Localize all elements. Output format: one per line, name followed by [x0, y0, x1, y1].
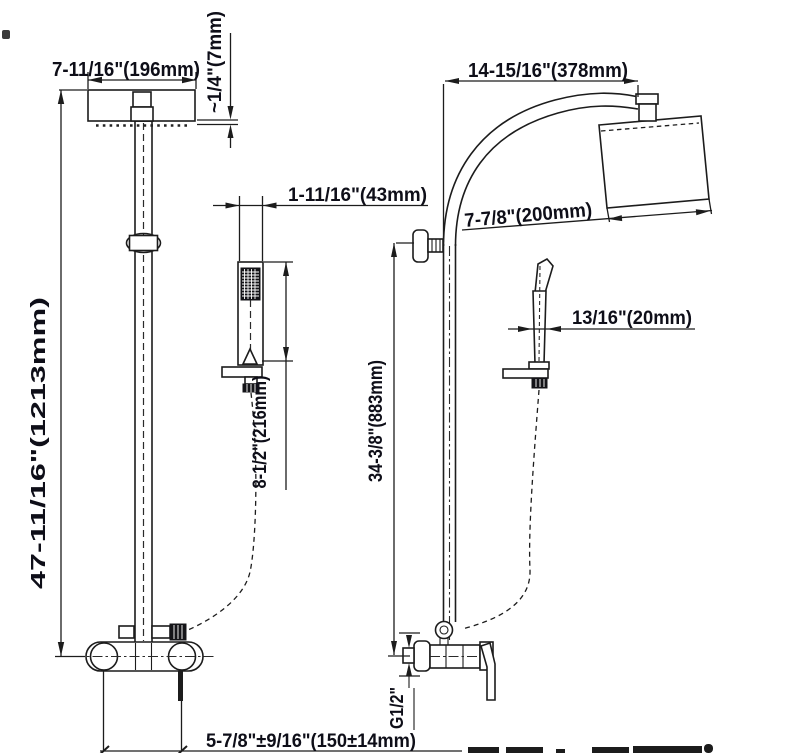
dim-label-handshower-length: 8-1/2"(216mm)	[250, 376, 271, 489]
dim-head-width: 7-11/16"(196mm)	[52, 59, 200, 89]
hand-shower-front	[222, 262, 263, 392]
dim-label-handshower-width: 1-11/16"(43mm)	[288, 184, 427, 206]
shower-hose-side	[462, 390, 539, 629]
dim-head-thickness: ~1/4"(7mm)	[197, 11, 238, 148]
arm-nut	[636, 94, 658, 104]
technical-drawing: 7-11/16"(196mm) ~1/4"(7mm) 47-11/16"(121…	[0, 0, 800, 753]
valve-handle-front	[178, 671, 183, 701]
wand-hose-nut	[532, 378, 547, 388]
head-connector	[639, 104, 656, 121]
diverter-knob	[119, 626, 134, 638]
dim-handshower-width: 1-11/16"(43mm)	[213, 184, 428, 261]
dim-label-head-depth: 7-7/8"(200mm)	[464, 199, 593, 232]
wall-bracket	[413, 230, 443, 262]
dim-label-arm-reach: 14-15/16"(378mm)	[468, 60, 628, 82]
riser-pipe-front	[135, 121, 152, 643]
holder-bracket	[222, 367, 262, 377]
dim-label-wand-thickness: 13/16"(20mm)	[572, 307, 692, 329]
dim-label-head-thickness: ~1/4"(7mm)	[205, 11, 226, 113]
dim-label-bracket-height: 34-3/8"(883mm)	[366, 360, 387, 482]
dim-label-inlet-spacing: 5-7/8"±9/16"(150±14mm)	[206, 730, 416, 752]
dim-total-height: 47-11/16"(1213mm)	[28, 90, 87, 657]
hose-outlet	[152, 626, 170, 638]
rain-head-front	[88, 90, 195, 126]
slider-ring	[127, 234, 161, 253]
side-view	[403, 93, 709, 700]
rain-head-side	[599, 94, 709, 208]
wand-holder	[503, 369, 548, 378]
stray-mark	[2, 30, 10, 39]
wall-escutcheon	[414, 641, 430, 671]
shower-hose-front	[188, 393, 256, 630]
front-view	[74, 90, 263, 701]
dim-bracket-height: 34-3/8"(883mm)	[366, 243, 414, 656]
dim-label-total-height: 47-11/16"(1213mm)	[28, 297, 50, 589]
drawing-canvas: 7-11/16"(196mm) ~1/4"(7mm) 47-11/16"(121…	[0, 0, 800, 753]
dim-head-depth: 7-7/8"(200mm)	[462, 199, 712, 232]
dim-label-inlet-thread: G1/2"	[387, 687, 407, 729]
dim-inlet-spacing: 5-7/8"±9/16"(150±14mm)	[98, 671, 462, 753]
hand-shower-side	[503, 259, 553, 388]
hose-swivel-joint	[436, 622, 453, 639]
dim-label-head-width: 7-11/16"(196mm)	[52, 59, 200, 81]
clipped-text-fragments	[468, 744, 713, 753]
